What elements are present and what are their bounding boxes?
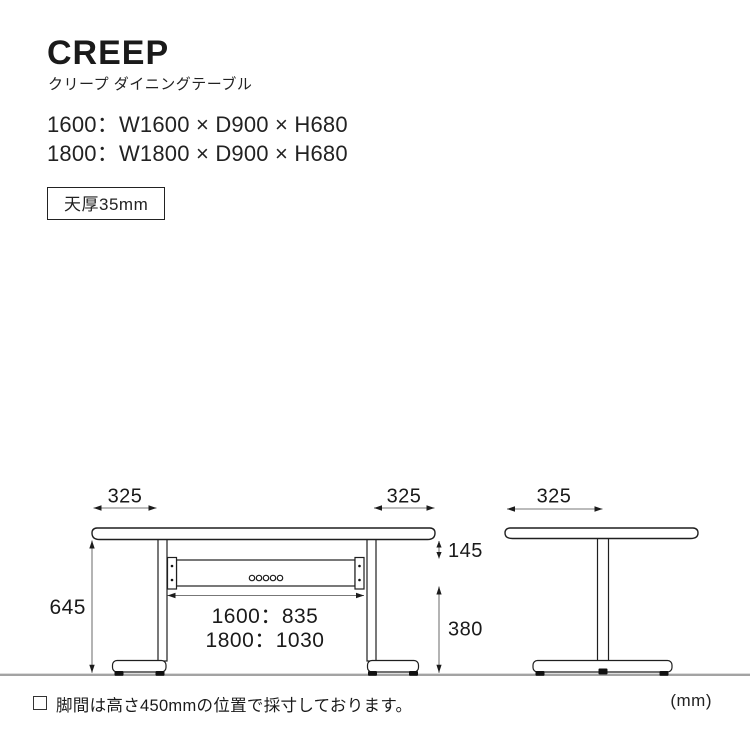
front-right-leg bbox=[367, 539, 376, 661]
stretcher-end-plate-left bbox=[168, 558, 177, 590]
side-tabletop bbox=[505, 528, 698, 539]
front-tabletop bbox=[92, 528, 435, 540]
foot-glide bbox=[368, 671, 377, 676]
dim-front-overhang-right: 325 bbox=[374, 486, 435, 511]
dim-label: 325 bbox=[537, 486, 572, 508]
front-left-foot bbox=[113, 661, 167, 673]
spec-sheet-page: CREEP クリープ ダイニングテーブル 1600：W1600 × D900 ×… bbox=[0, 0, 750, 750]
dimension-diagram: 325 325 325 645 145 bbox=[0, 0, 750, 750]
foot-glide bbox=[115, 671, 124, 676]
foot-glide bbox=[156, 671, 165, 676]
stretcher-vent-holes bbox=[249, 575, 282, 580]
front-right-foot bbox=[368, 661, 419, 673]
plate-screw bbox=[171, 579, 174, 582]
dim-label: 145 bbox=[448, 540, 483, 562]
stretcher-beam bbox=[177, 560, 356, 586]
dim-label: 325 bbox=[387, 486, 422, 508]
dim-label: 380 bbox=[448, 619, 483, 641]
dim-label: 325 bbox=[108, 486, 143, 508]
front-left-leg bbox=[158, 539, 167, 661]
stretcher-end-plate-right bbox=[355, 558, 364, 590]
foot-glide bbox=[536, 671, 545, 676]
front-view-drawing bbox=[92, 528, 435, 676]
plate-screw bbox=[358, 565, 361, 568]
dim-front-overhang-left: 325 bbox=[94, 486, 157, 511]
dim-floor-to-stretcher-380: 380 bbox=[436, 587, 482, 673]
side-leg bbox=[598, 538, 609, 661]
measurement-footnote: 脚間は高さ450mmの位置で採寸しております。 bbox=[33, 692, 412, 716]
dim-side-overhang: 325 bbox=[507, 486, 603, 512]
foot-glide bbox=[409, 671, 418, 676]
leg-base-connector bbox=[599, 669, 608, 675]
square-bullet-icon bbox=[33, 696, 47, 710]
unit-label: (mm) bbox=[670, 691, 712, 711]
plate-screw bbox=[358, 579, 361, 582]
plate-screw bbox=[171, 565, 174, 568]
dim-height-645: 645 bbox=[49, 541, 94, 673]
foot-glide bbox=[660, 671, 669, 676]
dim-label-span-1600: 1600：835 bbox=[212, 605, 319, 628]
dim-leg-span: 1600：835 1800：1030 bbox=[168, 593, 365, 652]
footnote-text: 脚間は高さ450mmの位置で採寸しております。 bbox=[56, 692, 412, 716]
side-view-drawing bbox=[505, 528, 698, 676]
dim-top-to-stretcher-145: 145 bbox=[436, 540, 482, 562]
dim-label: 645 bbox=[49, 596, 86, 619]
dim-label-span-1800: 1800：1030 bbox=[206, 629, 325, 652]
